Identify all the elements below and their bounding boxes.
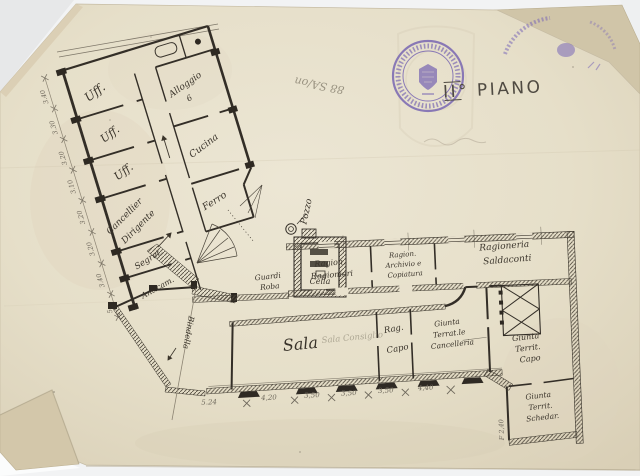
dim-right-vertical: F 2,40 [497, 419, 506, 441]
dim-bottom-5: 4,40 [417, 384, 434, 393]
floor-plan-drawing: Uff. Uff. Uff. Cancellier Dirigente Segr… [0, 0, 640, 476]
cell-bunk [310, 249, 328, 255]
dim-bottom-1: 4,20 [260, 393, 277, 402]
dim-bottom-3: 3,50 [341, 389, 357, 398]
paper-stain [135, 419, 505, 467]
scanned-floor-plan: Uff. Uff. Uff. Cancellier Dirigente Segr… [0, 0, 640, 476]
dim-bottom-2: 3,50 [304, 391, 320, 400]
label-sala: Sala [282, 333, 319, 355]
dim-bottom-4: 3,50 [378, 386, 394, 395]
dim-bottom-0: 5.24 [201, 398, 217, 407]
